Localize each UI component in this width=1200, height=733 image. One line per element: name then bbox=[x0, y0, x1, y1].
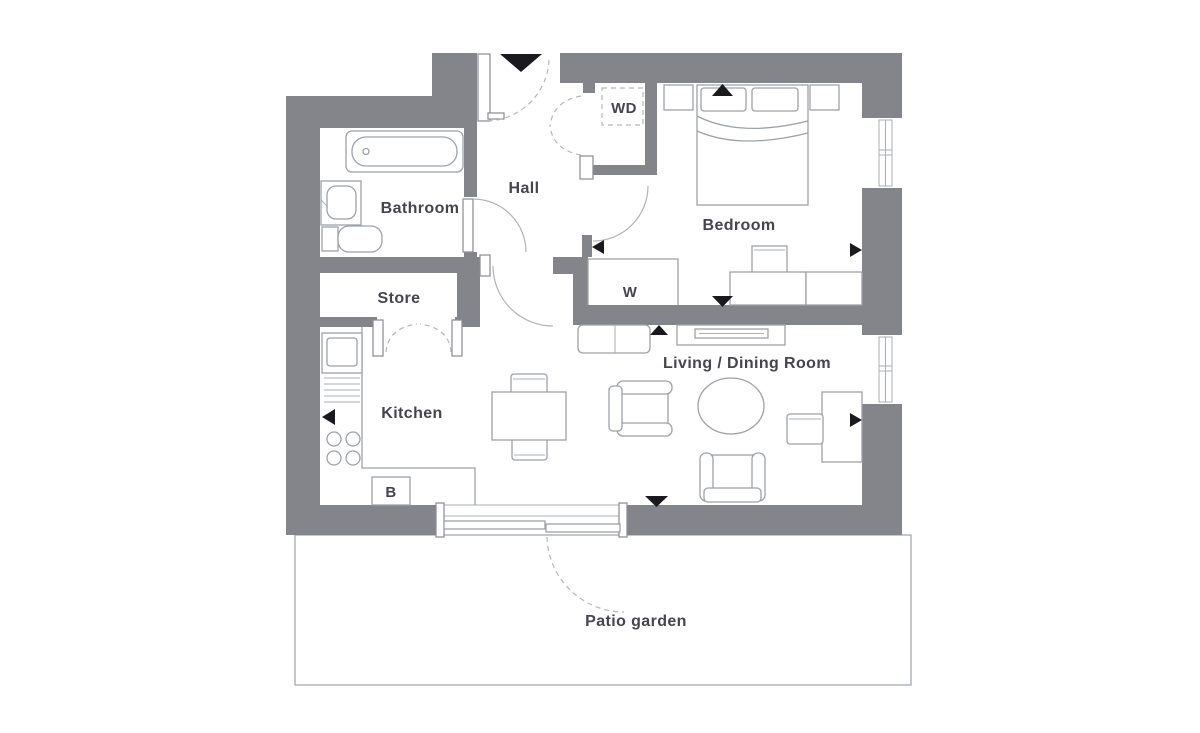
tv-unit bbox=[677, 325, 785, 345]
patio-door-panel-1 bbox=[444, 521, 545, 529]
toilet bbox=[322, 226, 382, 252]
armchair-bottom bbox=[700, 453, 765, 502]
double-bed bbox=[697, 85, 808, 205]
bedside-table-right bbox=[810, 85, 839, 110]
bathroom-door-swing bbox=[473, 199, 526, 252]
bedroom-stool bbox=[752, 246, 787, 274]
wall-right-a bbox=[862, 53, 902, 118]
patio-garden-label: Patio garden bbox=[585, 613, 687, 630]
bedside-table-left bbox=[664, 85, 693, 110]
bedroom-label: Bedroom bbox=[702, 217, 775, 234]
patio-door-panel-2 bbox=[546, 524, 620, 532]
wall-bedroom-door-block bbox=[582, 235, 592, 257]
wd-door-swing-upper bbox=[550, 96, 581, 126]
dining-set bbox=[492, 374, 566, 460]
store-door-swing-right bbox=[420, 324, 451, 352]
oven bbox=[322, 333, 362, 402]
washer-dryer-label: WD bbox=[611, 100, 637, 117]
wall-wardrobe-left bbox=[573, 257, 588, 305]
hob bbox=[327, 432, 360, 465]
bathtub bbox=[346, 131, 463, 172]
boiler-label: B bbox=[385, 484, 396, 501]
wardrobe-label: W bbox=[623, 284, 638, 301]
wd-door-swing-lower bbox=[550, 126, 581, 155]
armchair-left bbox=[609, 381, 672, 436]
wall-bathroom-bottom bbox=[286, 257, 480, 273]
floorplan-canvas: Patio garden bbox=[0, 0, 1200, 733]
entrance-arrow-marker bbox=[500, 54, 542, 72]
kitchen-label: Kitchen bbox=[381, 405, 442, 422]
store-label: Store bbox=[378, 290, 421, 307]
chest-of-drawers-left bbox=[730, 272, 806, 305]
patio-garden-area: Patio garden bbox=[295, 535, 911, 685]
marker-bedroom-right bbox=[850, 243, 862, 257]
wall-store-right bbox=[457, 273, 480, 317]
store-door-swing-left bbox=[386, 324, 417, 352]
marker-kitchen-left bbox=[322, 409, 335, 425]
wall-bathroom-top bbox=[286, 96, 436, 128]
wall-entry-pier bbox=[432, 53, 477, 128]
wall-bottom-left bbox=[286, 505, 440, 535]
washbasin bbox=[321, 181, 361, 225]
chest-of-drawers-right bbox=[806, 272, 862, 305]
bathroom-label: Bathroom bbox=[381, 200, 460, 217]
floorplan-drawing: Patio garden bbox=[0, 0, 1200, 733]
wall-wd-right bbox=[645, 83, 657, 175]
wall-top bbox=[560, 53, 902, 83]
wall-bedroom-living bbox=[573, 305, 902, 325]
wall-bathroom-hall bbox=[464, 128, 477, 197]
wall-wd-stub bbox=[583, 83, 595, 93]
bedroom-door-swing bbox=[593, 186, 648, 241]
living-dining-label: Living / Dining Room bbox=[663, 355, 831, 372]
desk bbox=[787, 392, 862, 462]
marker-hall-left bbox=[592, 240, 604, 254]
boiler-cupboard: B bbox=[372, 477, 410, 505]
coffee-table bbox=[698, 378, 764, 434]
entrance-door-leaf bbox=[478, 54, 490, 121]
bathroom-door-leaf bbox=[463, 199, 473, 252]
living-furniture bbox=[578, 325, 862, 502]
wall-left bbox=[286, 96, 320, 535]
marker-living-top bbox=[650, 325, 668, 335]
living-door-swing bbox=[493, 266, 553, 326]
bedroom-furniture bbox=[588, 85, 862, 305]
bathroom-fixtures bbox=[321, 131, 463, 252]
wall-store-bottom-left bbox=[320, 317, 377, 327]
hall-label: Hall bbox=[509, 180, 540, 197]
dining-table bbox=[492, 392, 566, 440]
sofa bbox=[578, 325, 650, 353]
wall-bottom-right bbox=[623, 505, 902, 535]
wall-wd-bottom bbox=[590, 165, 657, 175]
